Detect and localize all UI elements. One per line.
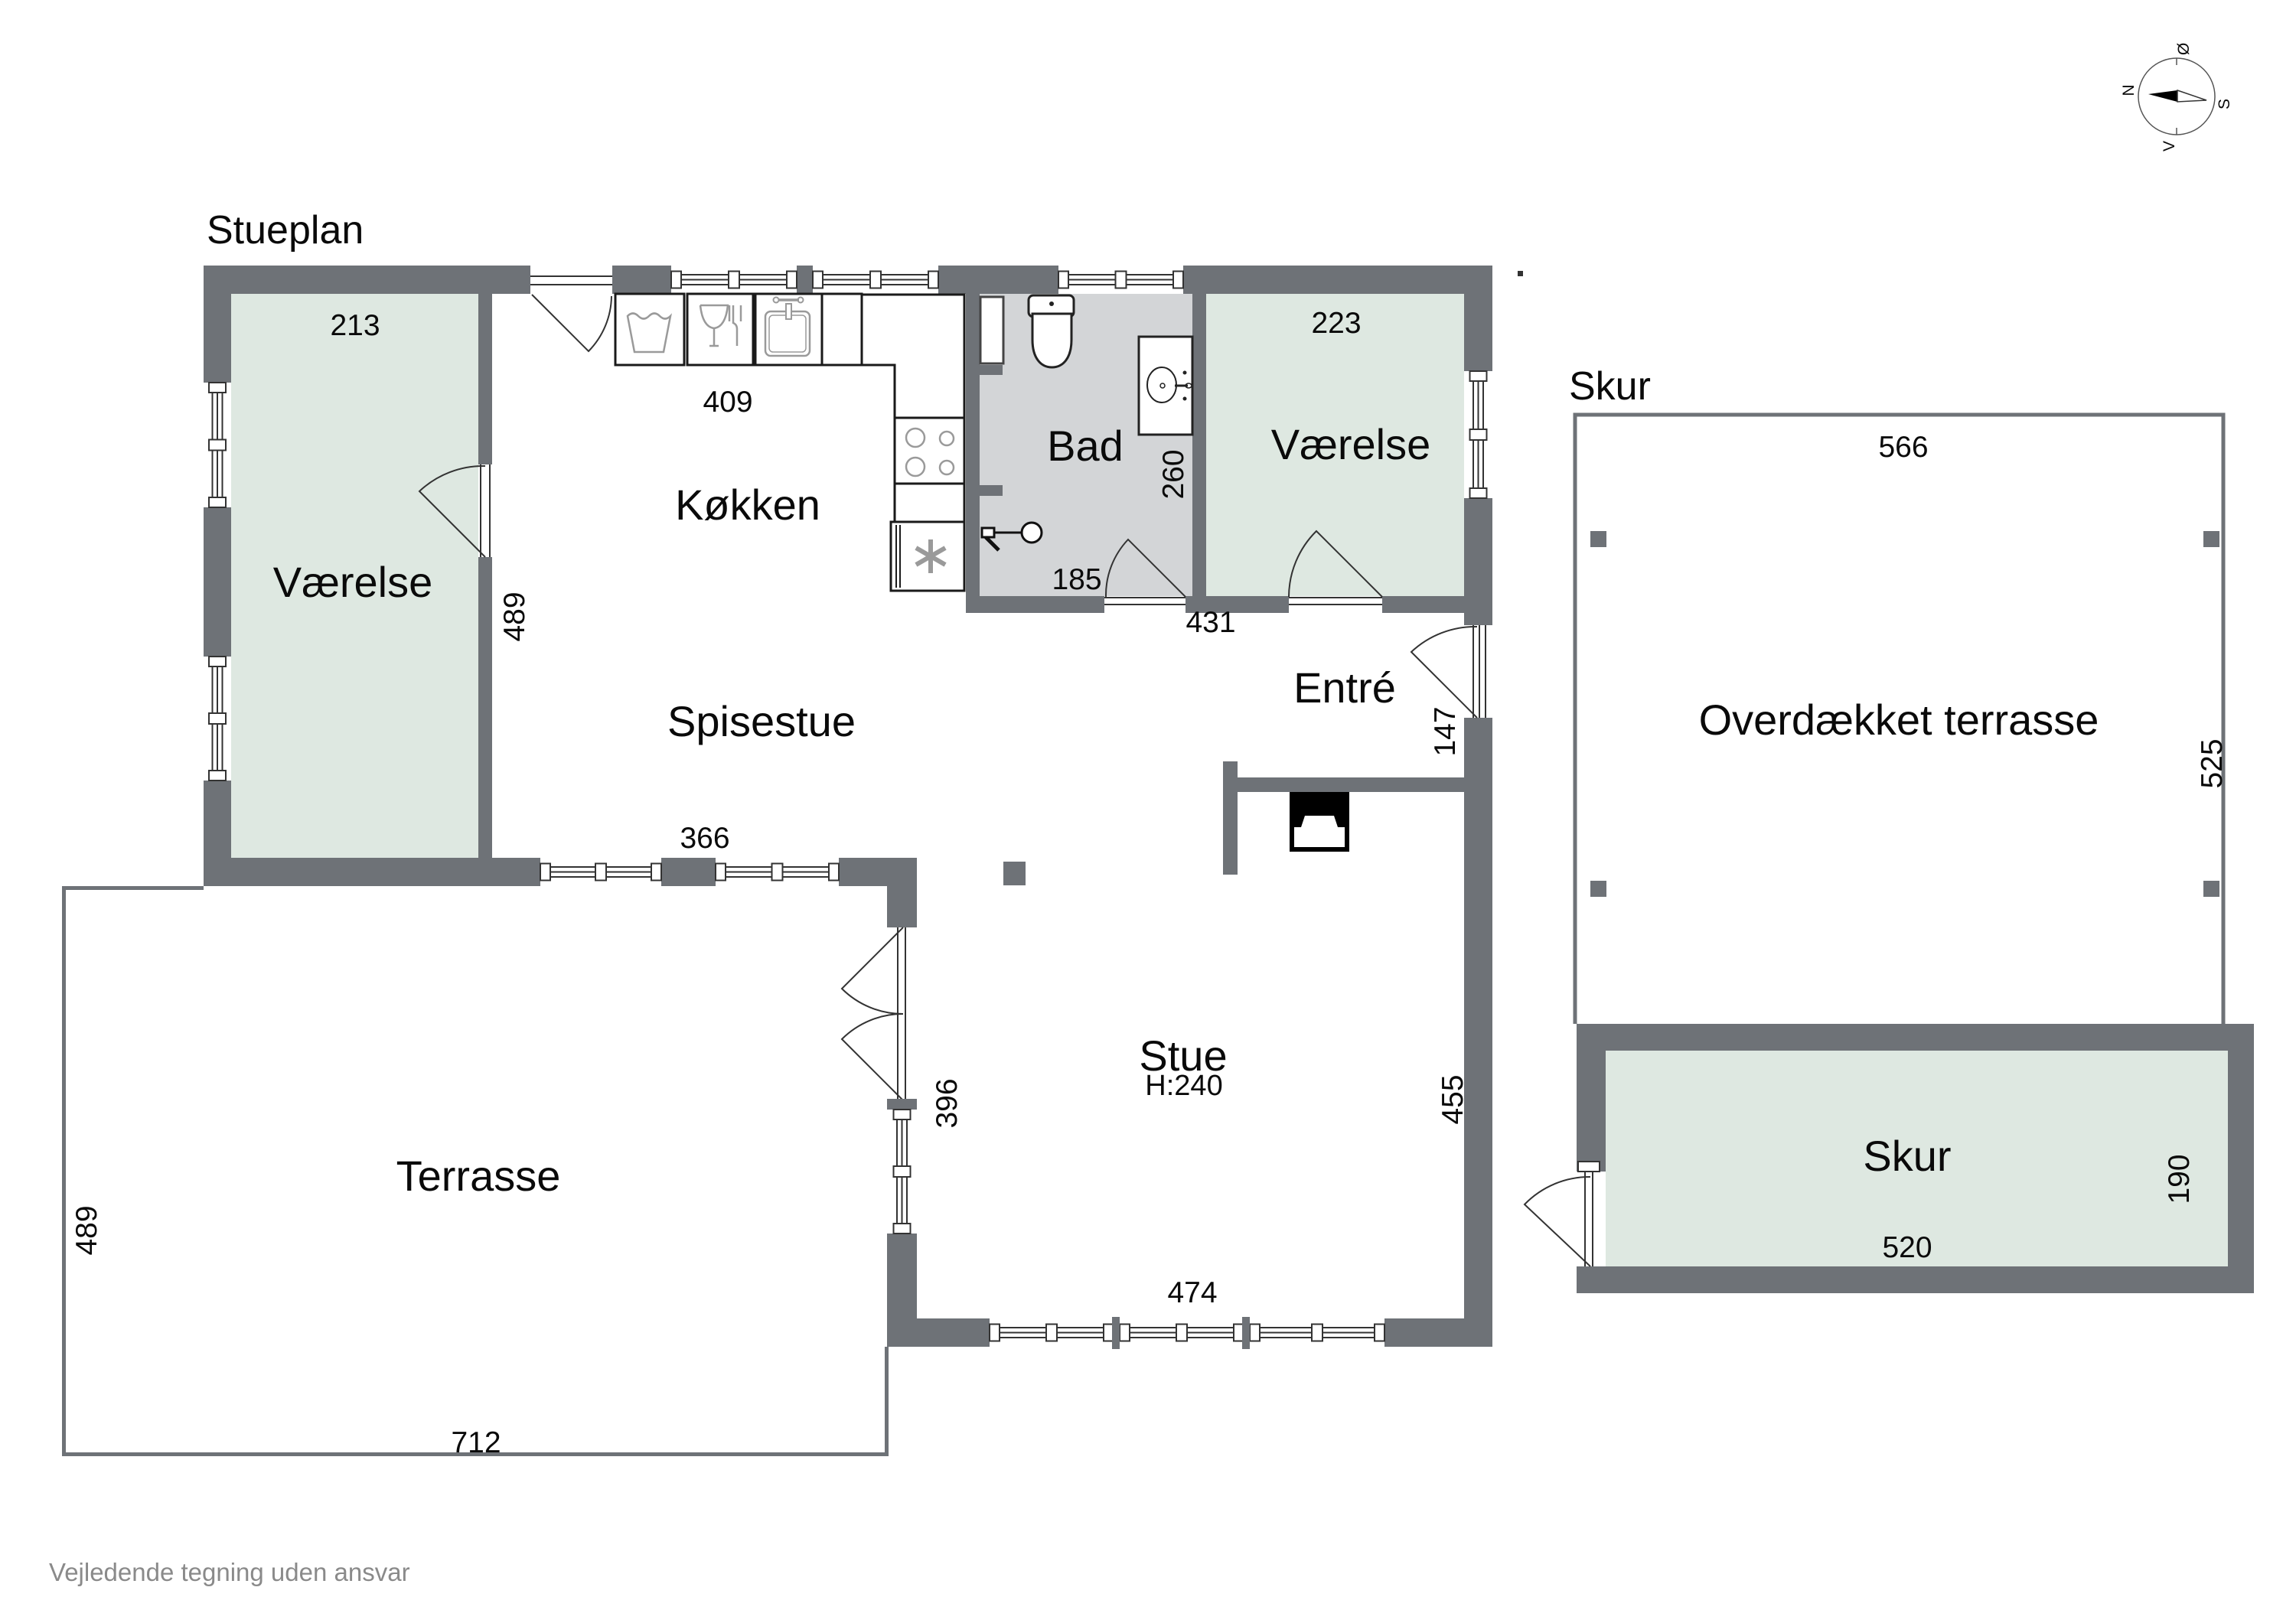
svg-text:409: 409 (703, 386, 752, 419)
svg-text:Værelse: Værelse (1271, 420, 1431, 468)
svg-text:431: 431 (1186, 606, 1235, 639)
svg-text:Køkken: Køkken (675, 481, 820, 529)
svg-text:Skur: Skur (1863, 1132, 1951, 1180)
svg-text:Terrasse: Terrasse (396, 1152, 561, 1200)
svg-text:Stueplan: Stueplan (207, 208, 364, 253)
svg-text:N: N (2120, 84, 2138, 96)
svg-text:Værelse: Værelse (273, 558, 433, 606)
svg-text:Ø: Ø (2175, 43, 2193, 55)
svg-text:489: 489 (70, 1205, 103, 1255)
svg-text:185: 185 (1052, 563, 1101, 596)
svg-text:213: 213 (330, 309, 380, 342)
svg-text:520: 520 (1882, 1231, 1932, 1264)
svg-text:489: 489 (498, 592, 531, 641)
svg-text:525: 525 (2196, 738, 2229, 788)
svg-text:S: S (2216, 99, 2233, 109)
svg-text:Entré: Entré (1293, 663, 1396, 712)
svg-text:474: 474 (1167, 1276, 1217, 1309)
svg-text:V: V (2161, 141, 2178, 152)
svg-text:455: 455 (1437, 1074, 1469, 1124)
svg-text:712: 712 (451, 1426, 501, 1459)
svg-text:366: 366 (680, 822, 729, 855)
svg-text:Bad: Bad (1047, 422, 1124, 470)
svg-text:Skur: Skur (1569, 364, 1651, 409)
svg-text:223: 223 (1311, 307, 1361, 340)
svg-text:260: 260 (1157, 449, 1190, 499)
svg-text:396: 396 (931, 1078, 964, 1128)
svg-text:190: 190 (2163, 1154, 2196, 1204)
svg-text:Vejledende tegning uden ansvar: Vejledende tegning uden ansvar (49, 1558, 410, 1586)
svg-text:H:240: H:240 (1145, 1070, 1222, 1102)
svg-text:147: 147 (1429, 706, 1462, 756)
svg-text:Overdækket terrasse: Overdækket terrasse (1699, 696, 2099, 744)
svg-text:566: 566 (1878, 431, 1928, 464)
svg-text:Spisestue: Spisestue (667, 697, 856, 745)
